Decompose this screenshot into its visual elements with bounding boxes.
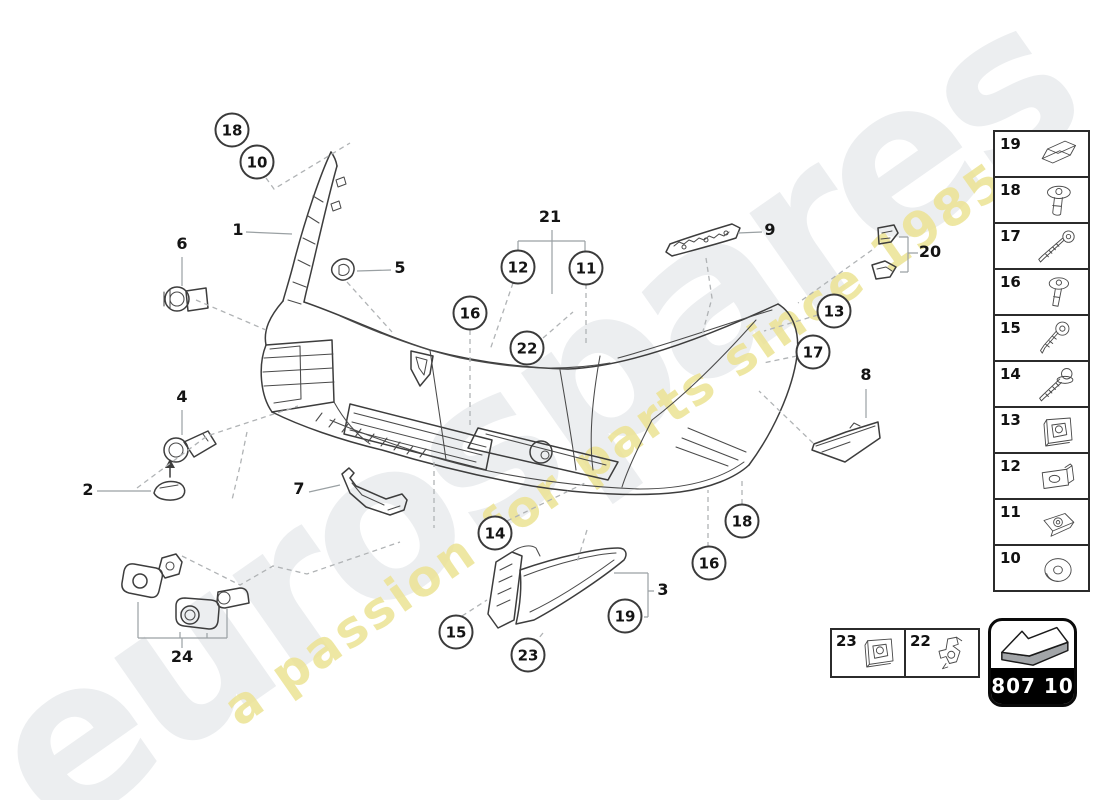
front-bumper-body <box>261 301 797 494</box>
callout-label-3[interactable]: 3 <box>657 580 668 599</box>
hardware-item-17[interactable]: 17 <box>993 222 1090 270</box>
callout-label-4[interactable]: 4 <box>176 387 187 406</box>
retainer-clips-part-20 <box>872 225 898 279</box>
callout-number: 19 <box>615 608 636 626</box>
callout-circle-18-0[interactable]: 18 <box>216 114 249 147</box>
screw-medium-icon <box>1030 273 1086 315</box>
callout-circle-16-12[interactable]: 16 <box>693 547 726 580</box>
hardware-item-number: 10 <box>1000 549 1021 567</box>
cage-nut-icon <box>1030 411 1086 453</box>
callout-label-9[interactable]: 9 <box>764 220 775 239</box>
hardware-item-number: 13 <box>1000 411 1021 429</box>
callout-circle-11-3[interactable]: 11 <box>570 252 603 285</box>
bumper-side-blade-part-1 <box>283 152 346 304</box>
washer-disc-icon <box>1030 549 1086 591</box>
callout-label-21[interactable]: 21 <box>539 207 561 226</box>
parts-diagram-page: eurospares a passion for parts since 198… <box>0 0 1100 800</box>
hardware-item-12[interactable]: 12 <box>993 452 1090 500</box>
callout-label-6[interactable]: 6 <box>176 234 187 253</box>
hardware-bottom-row: 2322 <box>830 628 980 678</box>
clip-nut-icon <box>1030 503 1086 545</box>
plates-icon <box>1030 135 1086 177</box>
hardware-item-19[interactable]: 19 <box>993 130 1090 178</box>
hardware-item-14[interactable]: 14 <box>993 360 1090 408</box>
callout-circle-23-10[interactable]: 23 <box>512 639 545 672</box>
hardware-item-number: 11 <box>1000 503 1021 521</box>
callout-circle-18-13[interactable]: 18 <box>726 505 759 538</box>
hardware-item-number: 22 <box>910 632 931 650</box>
callout-circle-10-1[interactable]: 10 <box>241 146 274 179</box>
screw-round-icon <box>1030 319 1086 361</box>
callout-number: 16 <box>460 305 481 323</box>
bumper-exploded-diagram: 1810121116221317141523191618123456789202… <box>0 0 1100 800</box>
hardware-item-22[interactable]: 22 <box>904 630 978 676</box>
callout-number: 11 <box>576 260 597 278</box>
hardware-item-15[interactable]: 15 <box>993 314 1090 362</box>
callout-number: 13 <box>824 303 845 321</box>
hardware-item-11[interactable]: 11 <box>993 498 1090 546</box>
screw-long-icon <box>1030 227 1086 269</box>
hardware-item-number: 14 <box>1000 365 1021 383</box>
leader-lines-dashed <box>137 143 872 644</box>
callout-label-1[interactable]: 1 <box>232 220 243 239</box>
callout-number: 12 <box>508 259 529 277</box>
callout-label-8[interactable]: 8 <box>860 365 871 384</box>
guide-strip-part-9 <box>666 224 740 256</box>
callout-number: 15 <box>446 624 467 642</box>
callout-label-5[interactable]: 5 <box>394 258 405 277</box>
callout-circle-17-7[interactable]: 17 <box>797 336 830 369</box>
callout-circle-16-4[interactable]: 16 <box>454 297 487 330</box>
hardware-item-number: 23 <box>836 632 857 650</box>
callout-circle-12-2[interactable]: 12 <box>502 251 535 284</box>
callout-number: 17 <box>803 344 824 362</box>
hardware-item-10[interactable]: 10 <box>993 544 1090 592</box>
callout-label-20[interactable]: 20 <box>919 242 941 261</box>
callout-number: 16 <box>699 555 720 573</box>
callout-circle-19-11[interactable]: 19 <box>609 600 642 633</box>
callout-circle-13-6[interactable]: 13 <box>818 295 851 328</box>
rivet-icon <box>1030 181 1086 223</box>
hardware-item-number: 12 <box>1000 457 1021 475</box>
callouts-layer: 1810121116221317141523191618123456789202… <box>82 114 941 672</box>
callout-circle-15-9[interactable]: 15 <box>440 616 473 649</box>
cage-nut-icon <box>855 632 903 674</box>
hardware-item-number: 17 <box>1000 227 1021 245</box>
sensor-bracket-icon <box>929 632 977 674</box>
hardware-item-23[interactable]: 23 <box>832 630 904 676</box>
callout-number: 10 <box>247 154 268 172</box>
callout-circle-22-5[interactable]: 22 <box>511 332 544 365</box>
callout-number: 18 <box>222 122 243 140</box>
clip-bracket-icon <box>1030 457 1086 499</box>
hardware-item-number: 15 <box>1000 319 1021 337</box>
hardware-item-16[interactable]: 16 <box>993 268 1090 316</box>
hardware-item-number: 16 <box>1000 273 1021 291</box>
washer-sensor-part-4 <box>164 431 216 462</box>
leader-lines-solid <box>97 230 918 648</box>
hardware-item-number: 18 <box>1000 181 1021 199</box>
callout-number: 23 <box>518 647 539 665</box>
sensor-holder-part-6 <box>164 287 208 311</box>
callout-label-24[interactable]: 24 <box>171 647 193 666</box>
screw-washer-icon <box>1030 365 1086 407</box>
mounting-bracket-part-7 <box>342 468 407 515</box>
side-marker-part-8 <box>812 422 880 462</box>
clip-part-2 <box>154 459 185 500</box>
hardware-item-13[interactable]: 13 <box>993 406 1090 454</box>
callout-number: 18 <box>732 513 753 531</box>
hardware-sidebar: 19181716151413121110 <box>993 130 1090 592</box>
callout-number: 14 <box>485 525 506 543</box>
hardware-item-18[interactable]: 18 <box>993 176 1090 224</box>
callout-label-2[interactable]: 2 <box>82 480 93 499</box>
back-arrow-icon <box>991 621 1074 668</box>
hook-clip-part-5 <box>332 259 354 280</box>
part-group-number: 807 10 <box>991 668 1074 704</box>
air-duct-part-3 <box>488 546 626 628</box>
callout-circle-14-8[interactable]: 14 <box>479 517 512 550</box>
callout-number: 22 <box>517 340 538 358</box>
hardware-item-number: 19 <box>1000 135 1021 153</box>
park-sensor-group-part-24 <box>122 554 249 629</box>
part-group-badge[interactable]: 807 10 <box>988 618 1077 707</box>
callout-label-7[interactable]: 7 <box>293 479 304 498</box>
